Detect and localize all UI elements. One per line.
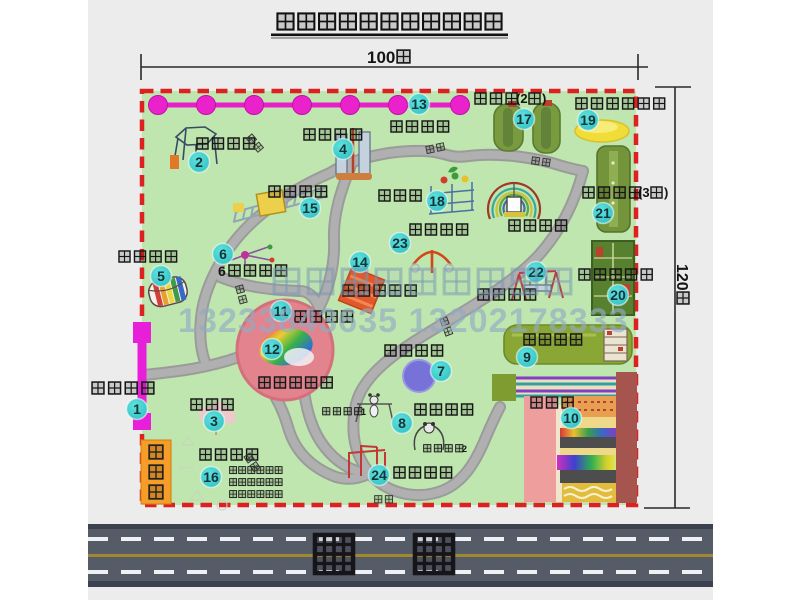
svg-text:24: 24 (371, 467, 387, 483)
svg-text:16: 16 (203, 469, 219, 485)
svg-text:20: 20 (610, 287, 626, 303)
svg-text:(3: (3 (638, 185, 650, 200)
svg-text:10: 10 (563, 410, 579, 426)
svg-text:15: 15 (302, 200, 318, 216)
svg-text:23: 23 (392, 235, 408, 251)
svg-text:): ) (664, 185, 668, 200)
svg-text:): ) (542, 91, 546, 106)
svg-text:5: 5 (157, 268, 165, 284)
svg-text:2: 2 (462, 444, 467, 454)
svg-text:9: 9 (523, 349, 531, 365)
svg-text:1: 1 (361, 407, 366, 417)
svg-text:6: 6 (219, 246, 227, 262)
svg-text:100: 100 (367, 48, 395, 67)
svg-text:21: 21 (595, 205, 611, 221)
svg-text:120: 120 (673, 264, 690, 291)
svg-text:18: 18 (429, 193, 445, 209)
svg-text:7: 7 (437, 363, 445, 379)
svg-text:13233843635 13202178333: 13233843635 13202178333 (178, 302, 629, 340)
svg-text:12: 12 (264, 341, 280, 357)
svg-text:1: 1 (133, 401, 141, 417)
svg-text:8: 8 (398, 415, 406, 431)
svg-text:4: 4 (339, 141, 347, 157)
svg-text:17: 17 (516, 111, 532, 127)
svg-text:3: 3 (210, 413, 218, 429)
svg-text:19: 19 (580, 112, 596, 128)
svg-text:13: 13 (411, 96, 427, 112)
svg-text:14: 14 (352, 254, 368, 270)
svg-text:6: 6 (218, 263, 226, 279)
svg-text:(2: (2 (516, 91, 528, 106)
svg-text:2: 2 (195, 154, 203, 170)
